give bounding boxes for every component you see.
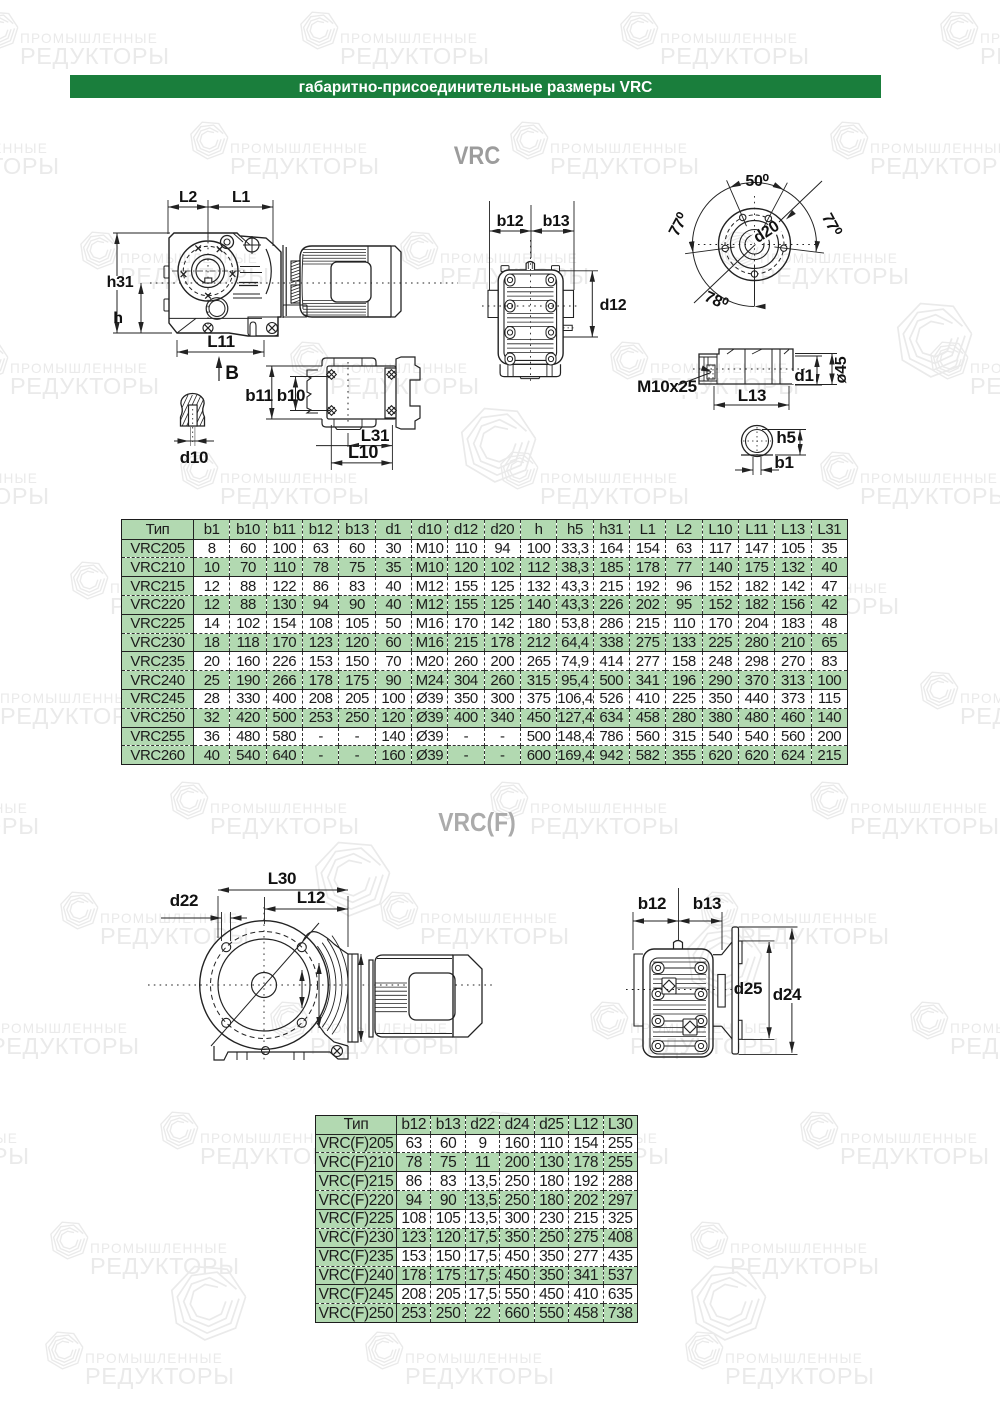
svg-text:h31: h31: [107, 274, 134, 291]
svg-text:L1: L1: [232, 189, 250, 206]
svg-text:77⁰: 77⁰: [818, 211, 844, 240]
svg-text:L13: L13: [738, 386, 766, 405]
svg-text:d1: d1: [794, 366, 813, 385]
svg-text:M10x25: M10x25: [637, 377, 697, 396]
svg-text:B: B: [225, 363, 238, 384]
svg-text:h5: h5: [776, 428, 795, 447]
svg-text:b11: b11: [245, 386, 272, 405]
svg-text:L12: L12: [297, 888, 325, 907]
svg-text:77⁰: 77⁰: [666, 210, 692, 239]
svg-text:b13: b13: [543, 213, 570, 230]
svg-text:b1: b1: [774, 453, 793, 472]
svg-text:L11: L11: [207, 332, 234, 351]
svg-text:h: h: [113, 310, 122, 327]
svg-text:L30: L30: [268, 869, 296, 888]
svg-text:b12: b12: [638, 894, 666, 913]
svg-text:b12: b12: [497, 213, 524, 230]
svg-text:L10: L10: [348, 442, 378, 462]
svg-text:b10: b10: [277, 386, 305, 405]
svg-text:d12: d12: [600, 297, 627, 314]
svg-text:L2: L2: [179, 189, 197, 206]
svg-text:ø45: ø45: [833, 356, 850, 383]
svg-text:d24: d24: [773, 985, 802, 1004]
svg-text:d10: d10: [180, 448, 208, 467]
svg-text:b13: b13: [693, 894, 721, 913]
svg-text:50⁰: 50⁰: [745, 173, 769, 190]
svg-text:d25: d25: [734, 979, 762, 998]
svg-text:d22: d22: [170, 891, 198, 910]
